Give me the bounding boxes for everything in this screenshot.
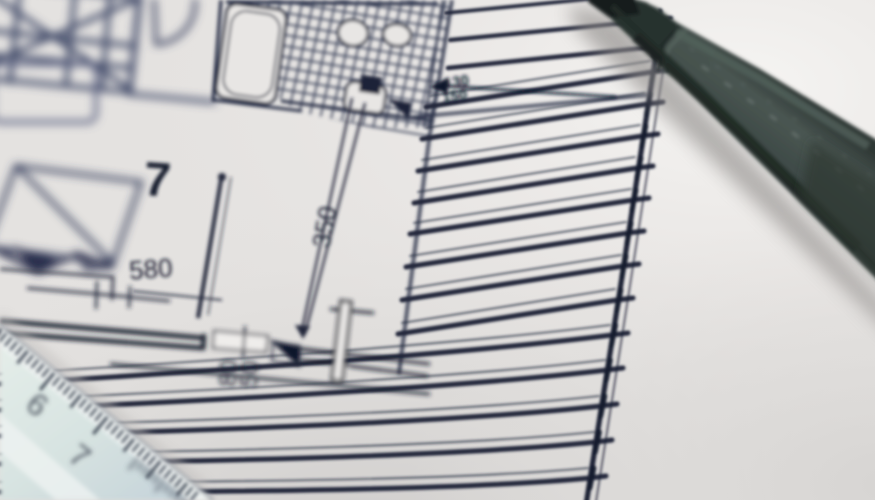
svg-text:7: 7 [142,153,172,208]
svg-text:50: 50 [235,360,264,389]
svg-text:580: 580 [128,252,173,285]
